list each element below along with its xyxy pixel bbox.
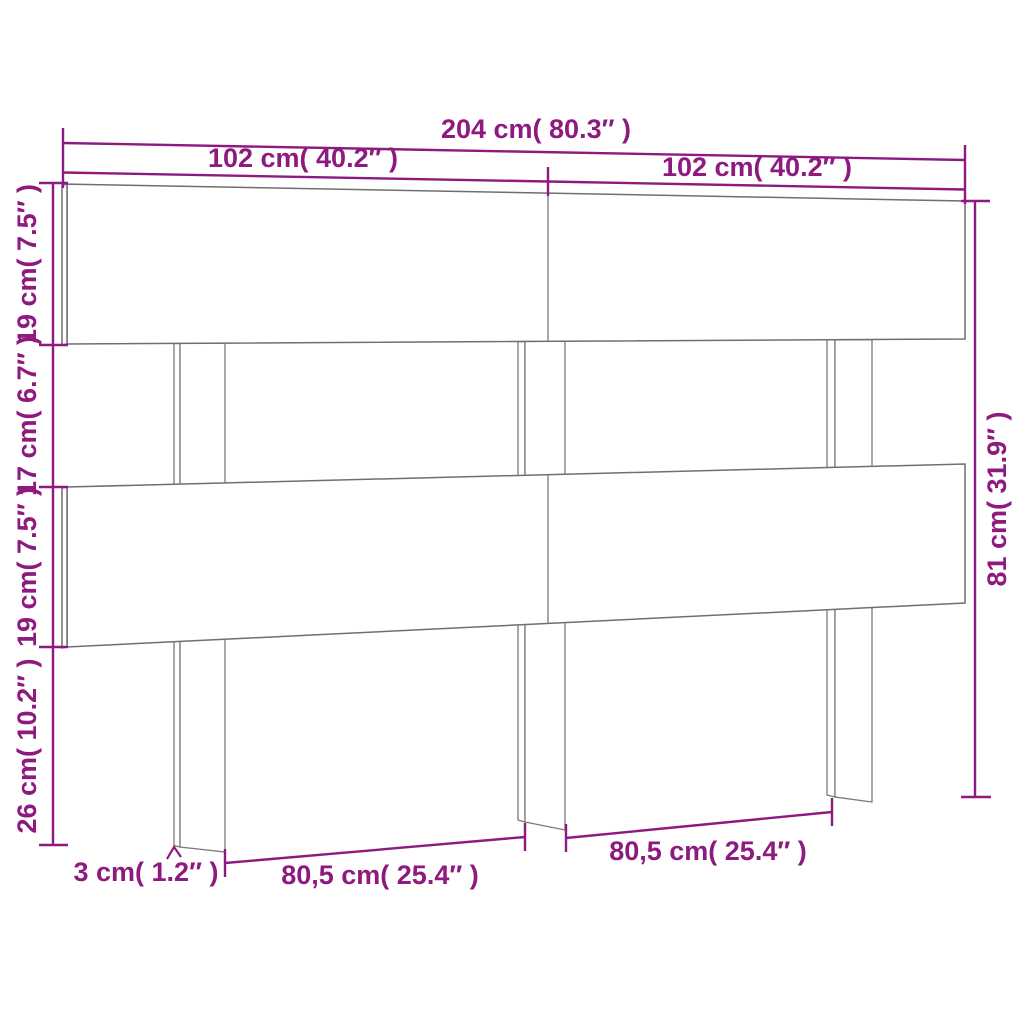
dim-left-half-line: [63, 173, 548, 182]
dim-right-leg-spacing-label: 80,5 cm( 25.4″ ): [609, 836, 807, 866]
dim-slat-gap-height-label: 17 cm( 6.7″ ): [12, 336, 42, 496]
dim-left-leg-spacing-label: 80,5 cm( 25.4″ ): [281, 860, 479, 890]
dim-right-half-line: [548, 182, 965, 190]
dim-leg-spacing-right-line: [566, 812, 832, 838]
dim-total-width-label: 204 cm( 80.3″ ): [441, 114, 631, 144]
dim-leg-thickness-label: 3 cm( 1.2″ ): [74, 857, 219, 887]
headboard-dimension-diagram: 204 cm( 80.3″ ) 102 cm( 40.2″ ) 102 cm( …: [0, 0, 1024, 1024]
dim-left-half-width-label: 102 cm( 40.2″ ): [208, 143, 398, 173]
dim-middle-slat-height-label: 19 cm( 7.5″ ): [12, 487, 42, 647]
top-slat: [62, 184, 965, 345]
dim-total-height-label: 81 cm( 31.9″ ): [982, 411, 1012, 586]
dim-right-half-width-label: 102 cm( 40.2″ ): [662, 152, 852, 182]
dim-top-slat-height-label: 19 cm( 7.5″ ): [12, 184, 42, 344]
middle-slat-side-face: [62, 487, 67, 648]
dim-legs-below-height-label: 26 cm( 10.2″ ): [12, 658, 42, 833]
diagram-canvas: 204 cm( 80.3″ ) 102 cm( 40.2″ ) 102 cm( …: [0, 0, 1024, 1024]
headboard-drawing: [62, 184, 965, 852]
top-slat-side-face: [62, 184, 67, 345]
top-slat-front-face: [67, 184, 965, 344]
